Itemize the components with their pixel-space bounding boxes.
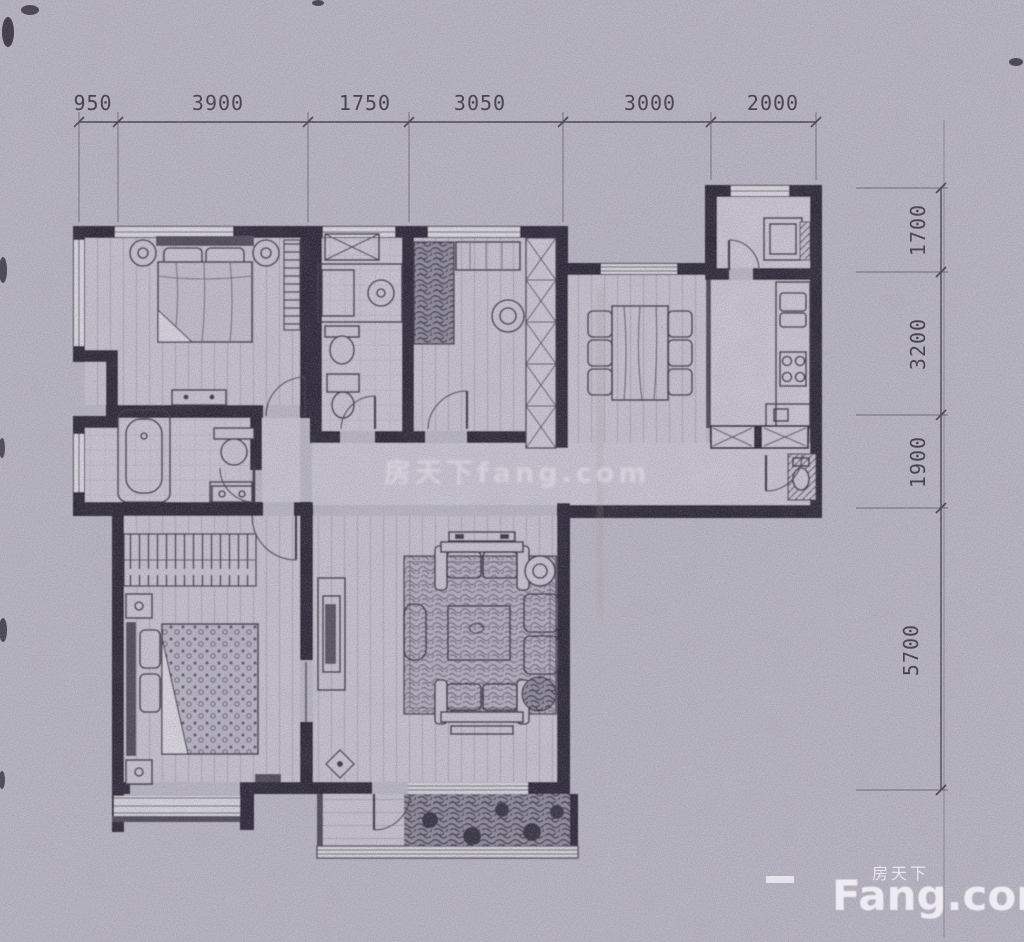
center-watermark: 房天下fang.com: [384, 451, 634, 493]
brand-watermark: 房天下 Fang.com: [758, 858, 1020, 938]
watermark-dash: [766, 876, 794, 883]
floorplan-scan: 950 3900 1750 3050 3000 2000 1700 3200 1…: [0, 0, 1024, 942]
watermark-brand-en: Fang.com: [832, 871, 1024, 920]
